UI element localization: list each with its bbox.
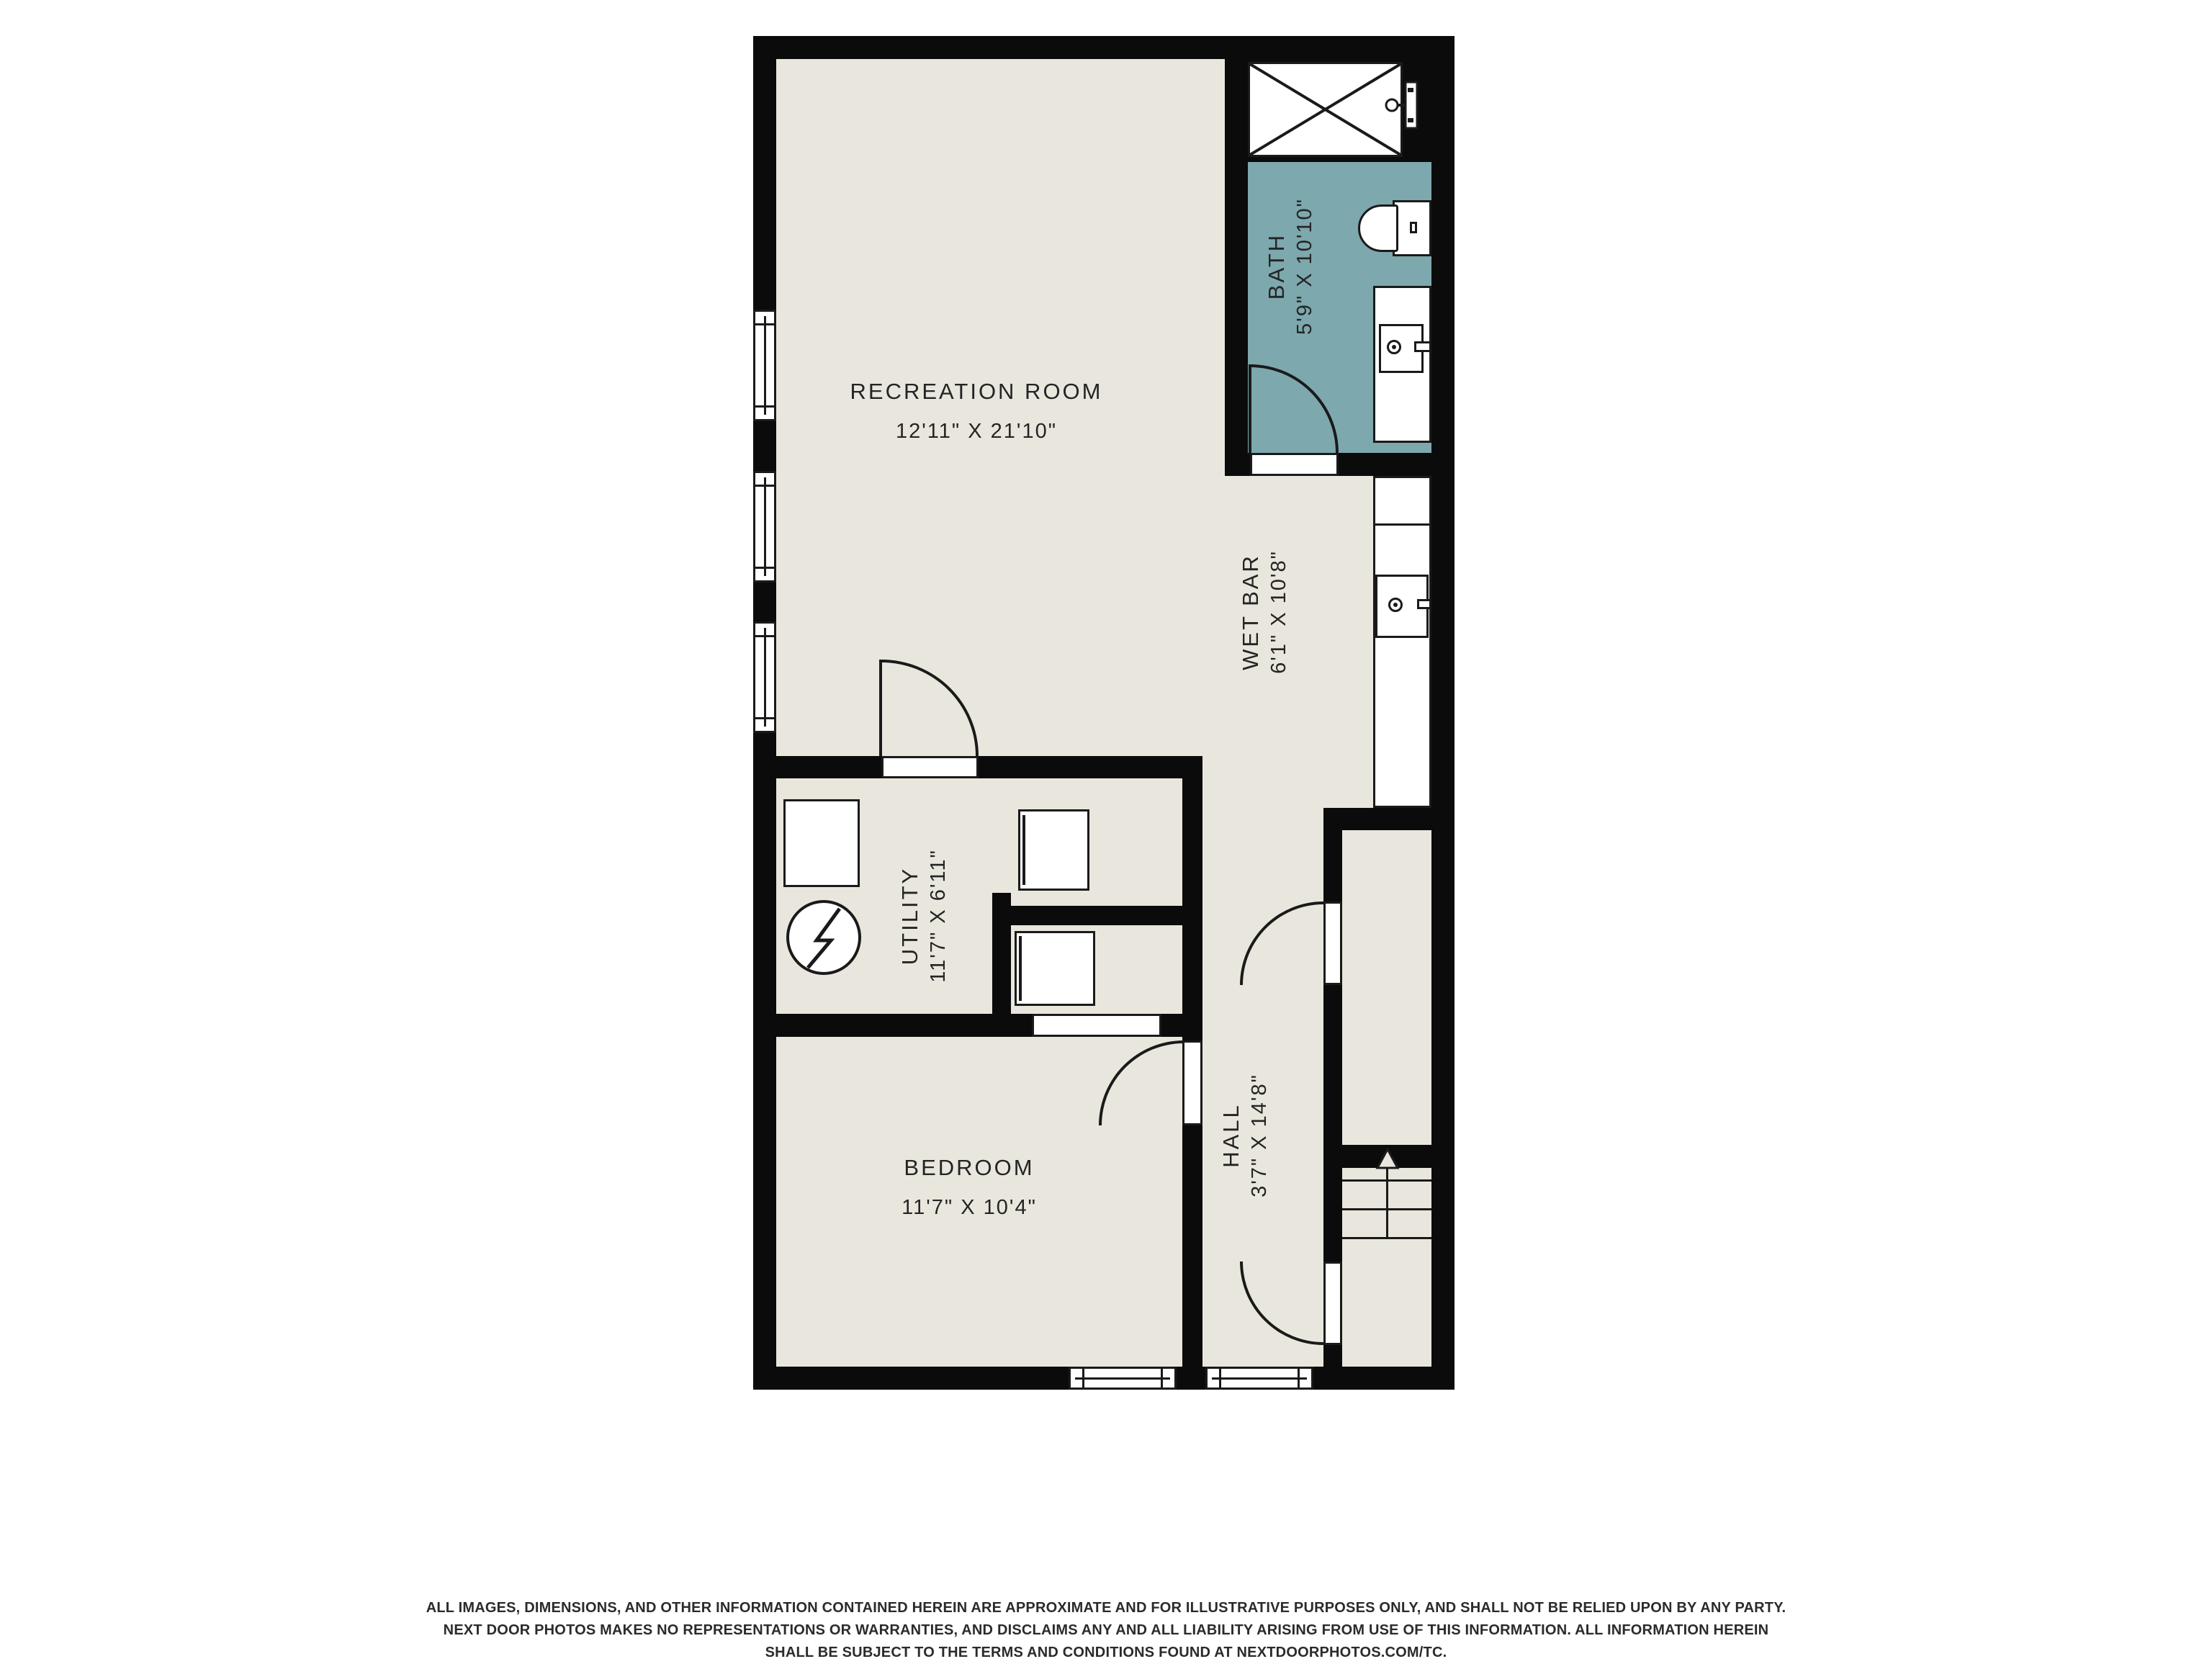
electrical-panel-icon [786,900,861,975]
recreation-room-name: RECREATION ROOM [796,380,1156,402]
outer-wall-top [753,36,1455,59]
stair-arrow-shaft [1386,1159,1388,1238]
toilet-flush-button [1410,222,1417,233]
utility-dims: 11'7" X 6'11" [928,849,949,983]
window-left-2 [753,471,776,583]
bath-west-wall [1225,59,1248,476]
window-left-3 [753,621,776,733]
bath-dims: 5'9" X 10'10" [1295,198,1316,335]
utility-partition-horizontal [1011,906,1182,925]
stairs-up-arrow-icon [1375,1148,1400,1169]
disclaimer-line-3: SHALL BE SUBJECT TO THE TERMS AND CONDIT… [0,1642,2212,1664]
stair-landing-floor [1342,830,1431,1145]
page: { "title": "Basement floor plan", "color… [0,0,2212,1659]
stair-north-wall [1323,808,1431,830]
lightning-icon [789,903,858,972]
wet-bar-counter [1373,476,1431,808]
bath-faucet-icon [1387,340,1401,354]
hall-upper-door-opening [1323,901,1342,985]
furnace-handle [1022,815,1025,885]
utility-appliance-washer [783,799,860,887]
bedroom-name: BEDROOM [789,1156,1149,1179]
recreation-door-opening [881,756,979,778]
wet-bar-counter-divider [1373,523,1431,526]
bath-label: BATH 5'9" X 10'10" [1260,158,1321,374]
wet-bar-faucet-icon [1388,598,1403,612]
utility-partition-vertical [992,893,1011,1014]
hall-name: HALL [1220,1103,1242,1168]
wet-bar-label: WET BAR 6'1" X 10'8" [1234,497,1295,727]
window-bedroom [1069,1367,1177,1390]
recreation-room-dims: 12'11" X 21'10" [796,421,1156,442]
wet-bar-faucet-handle [1417,599,1431,609]
wet-bar-name: WET BAR [1239,554,1262,670]
bath-name: BATH [1265,233,1287,300]
hall-lower-door-opening [1323,1262,1342,1345]
hall-label: HALL 3'7" X 14'8" [1215,1013,1275,1258]
shower-head-icon [1384,81,1421,130]
window-hall [1205,1367,1313,1390]
disclaimer: ALL IMAGES, DIMENSIONS, AND OTHER INFORM… [0,1597,2212,1664]
closet-appliance-water-heater [1015,931,1095,1006]
outer-wall-right [1431,36,1455,1390]
disclaimer-line-1: ALL IMAGES, DIMENSIONS, AND OTHER INFORM… [0,1597,2212,1619]
closet-cased-opening [1032,1014,1161,1037]
floor-plan: RECREATION ROOM 12'11" X 21'10" BATH 5'9… [753,36,1455,1390]
window-left-1 [753,310,776,421]
utility-name: UTILITY [899,867,921,965]
utility-appliance-furnace [1018,809,1089,891]
bedroom-label: BEDROOM 11'7" X 10'4" [789,1156,1149,1218]
wet-bar-dims: 6'1" X 10'8" [1269,550,1290,674]
bath-door-opening [1250,453,1339,476]
water-heater-handle [1019,936,1022,1001]
bedroom-dims: 11'7" X 10'4" [789,1197,1149,1218]
disclaimer-line-2: NEXT DOOR PHOTOS MAKES NO REPRESENTATION… [0,1619,2212,1642]
shower-x-icon [1250,64,1401,155]
bedroom-door-opening [1182,1040,1202,1125]
utility-label: UTILITY 11'7" X 6'11" [894,808,954,1024]
bath-faucet-handle [1414,341,1431,352]
shower-pan [1248,62,1403,157]
recreation-room-label: RECREATION ROOM 12'11" X 21'10" [796,380,1156,442]
hall-dims: 3'7" X 14'8" [1249,1074,1270,1197]
